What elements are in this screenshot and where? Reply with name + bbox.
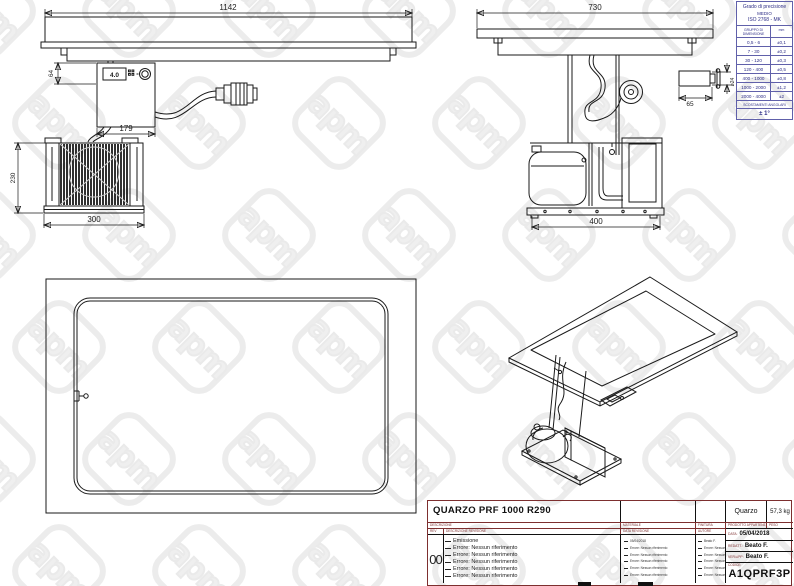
power-connector [216, 83, 257, 105]
rev-number-cell: 00 [428, 534, 444, 583]
connector-detail: ø24 65 [679, 63, 736, 108]
redatt-label: REDATT.: [728, 544, 743, 549]
tolerance-row: 0,5 - 6±0,1 [737, 37, 792, 46]
title-block: QUARZO PRF 1000 R290 Quarzo 57,3 kg DESC… [427, 500, 792, 586]
angular-tolerance-value: ± 1° [737, 108, 792, 119]
fold-mark [638, 582, 653, 586]
dim-65: 65 [686, 101, 694, 108]
side-view: 730 [477, 3, 736, 230]
revision-list: Emissione Errore: Nessun riferimento Err… [444, 534, 621, 583]
dim-300: 300 [87, 215, 101, 224]
tolerance-standard: ISO 2768 - MK [737, 16, 792, 25]
dim-179: 179 [119, 124, 133, 133]
fold-mark [578, 582, 591, 586]
verapp-value: Beato F. [746, 554, 769, 560]
revision-entry: Emissione [444, 538, 620, 545]
col-range: GRUPPO DI DIMENSIONE [737, 26, 771, 37]
date-value: 05/04/2018 [739, 531, 769, 537]
revision-authors: Beato F. Errore: Nessun riferimento Erro… [696, 534, 726, 583]
control-knob [140, 69, 151, 80]
revision-entry: Errore: Nessun riferimento [444, 552, 620, 559]
revision-entry: Errore: Nessun riferimento [444, 566, 620, 573]
drawing-title: QUARZO PRF 1000 R290 [428, 501, 621, 522]
codice-value: A1QPRF3P [726, 568, 793, 580]
temperature-display: 4.0 [110, 72, 119, 79]
probe-sensor [74, 391, 88, 401]
dim-1142: 1142 [219, 3, 237, 12]
tolerance-row: 30 - 120±0,3 [737, 55, 792, 64]
plan-view [46, 279, 416, 513]
isometric-view [509, 277, 737, 485]
redatt-value: Beato F. [745, 543, 768, 549]
tolerance-row: 7 - 30±0,2 [737, 46, 792, 55]
compressor-iso [526, 424, 568, 463]
tolerance-header: GRUPPO DI DIMENSIONE mm [737, 25, 792, 37]
verapp-row: VER/APP: Beato F. [726, 551, 793, 562]
drawing-canvas: 1142 4.0 64 [0, 0, 794, 586]
revision-entry: Errore: Nessun riferimento [444, 573, 620, 580]
tolerance-row: 400 - 1000±0,8 [737, 73, 792, 82]
revision-entry: Errore: Nessun riferimento [444, 545, 620, 552]
tolerance-table: Grado di precisione MEDIO ISO 2768 - MK … [736, 1, 793, 120]
codice-cell: CODICE: A1QPRF3P [726, 562, 793, 583]
revision-entry: Errore: Nessun riferimento [444, 559, 620, 566]
dim-400: 400 [589, 217, 603, 226]
finitura-value-cell [696, 501, 726, 522]
redatt-row: REDATT.: Beato F. [726, 540, 793, 551]
rev-number: 00 [428, 535, 443, 583]
coiled-plug [620, 81, 643, 104]
dim-730: 730 [588, 3, 602, 12]
weight-value: 57,3 kg [767, 501, 793, 522]
control-box: 4.0 [97, 63, 155, 127]
tolerance-title: Grado di precisione [737, 2, 792, 10]
verapp-label: VER/APP: [728, 555, 744, 560]
col-tol: mm [771, 26, 792, 37]
tolerance-row: 1000 - 2000±1,2 [737, 82, 792, 91]
compressor-unit-side [527, 138, 664, 218]
tolerance-row: 120 - 400±0,5 [737, 64, 792, 73]
dim-230: 230 [10, 172, 17, 183]
materiale-value-cell [621, 501, 696, 522]
date-label: DATA: [728, 532, 737, 537]
dim-64: 64 [48, 70, 55, 78]
date-row: DATA: 05/04/2018 [726, 528, 793, 540]
revision-dates: 05/04/2018 Errore: Nessun riferimento Er… [621, 534, 696, 583]
condenser-front [44, 138, 144, 213]
product-family-value: Quarzo [726, 501, 767, 522]
front-view: 1142 4.0 64 [10, 3, 416, 228]
tolerance-row: 2000 - 4000±2 [737, 91, 792, 100]
angular-tolerance-label: SCOSTAMENTI ANGOLARI [737, 100, 792, 108]
